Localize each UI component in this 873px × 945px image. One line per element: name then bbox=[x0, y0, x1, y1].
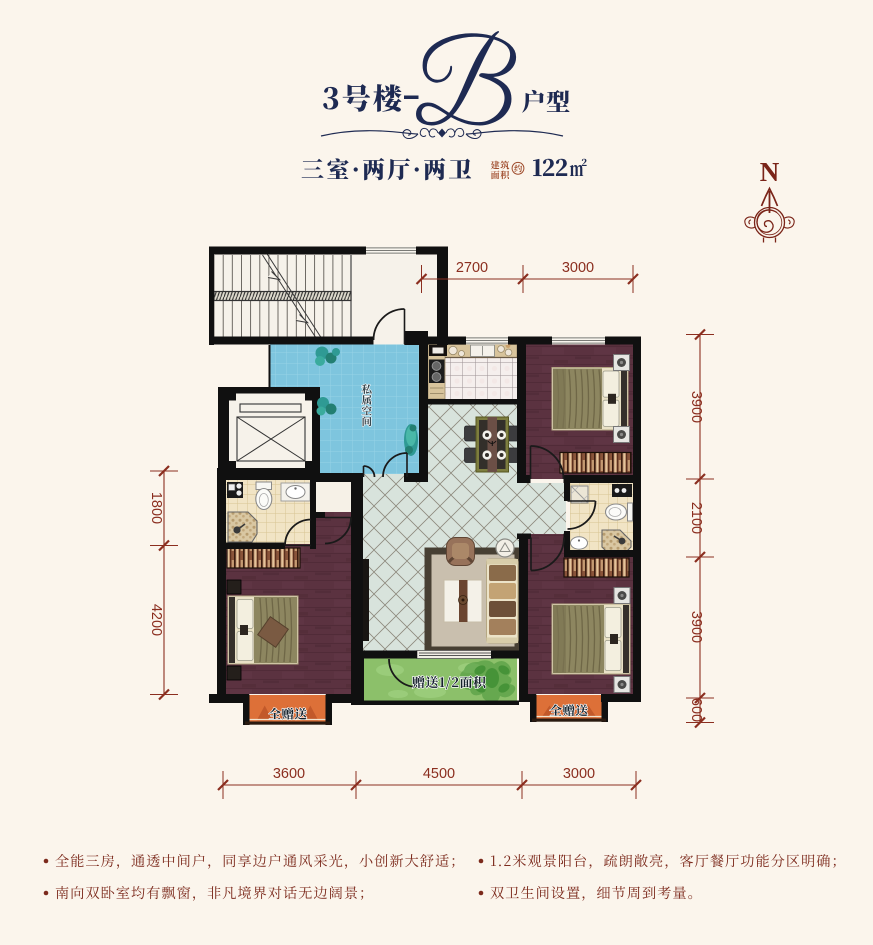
svg-text:1800: 1800 bbox=[148, 492, 164, 524]
svg-text:3600: 3600 bbox=[273, 766, 305, 782]
svg-text:2700: 2700 bbox=[456, 260, 488, 276]
svg-text:2100: 2100 bbox=[688, 502, 704, 534]
svg-text:3900: 3900 bbox=[688, 391, 704, 423]
svg-text:3000: 3000 bbox=[563, 766, 595, 782]
svg-text:4200: 4200 bbox=[148, 604, 164, 636]
svg-text:3000: 3000 bbox=[562, 260, 594, 276]
svg-text:600: 600 bbox=[688, 698, 704, 722]
svg-text:4500: 4500 bbox=[423, 766, 455, 782]
svg-text:3900: 3900 bbox=[688, 611, 704, 643]
svg-text:N: N bbox=[760, 157, 780, 187]
